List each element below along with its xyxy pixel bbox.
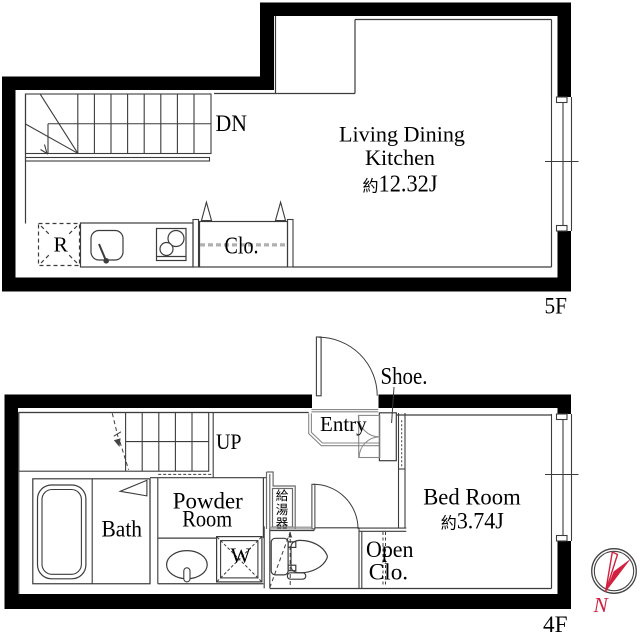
svg-text:W: W (231, 544, 252, 568)
svg-text:R: R (54, 233, 69, 257)
svg-text:湯: 湯 (276, 503, 289, 517)
svg-text:給: 給 (276, 489, 289, 503)
svg-text:Clo.: Clo. (225, 234, 259, 260)
svg-text:Room: Room (182, 507, 232, 532)
svg-text:N: N (593, 593, 610, 617)
svg-text:Bath: Bath (102, 517, 143, 542)
svg-text:Living Dining: Living Dining (339, 122, 465, 147)
svg-text:4F: 4F (543, 612, 568, 637)
svg-text:5F: 5F (545, 294, 568, 319)
svg-text:DN: DN (216, 111, 248, 136)
svg-text:Shoe.: Shoe. (381, 364, 428, 390)
svg-text:UP: UP (216, 429, 242, 454)
svg-text:Entry: Entry (320, 412, 367, 436)
svg-text:Clo.: Clo. (369, 560, 408, 586)
svg-text:Kitchen: Kitchen (365, 145, 435, 170)
svg-text:Bed Room: Bed Room (423, 485, 521, 510)
